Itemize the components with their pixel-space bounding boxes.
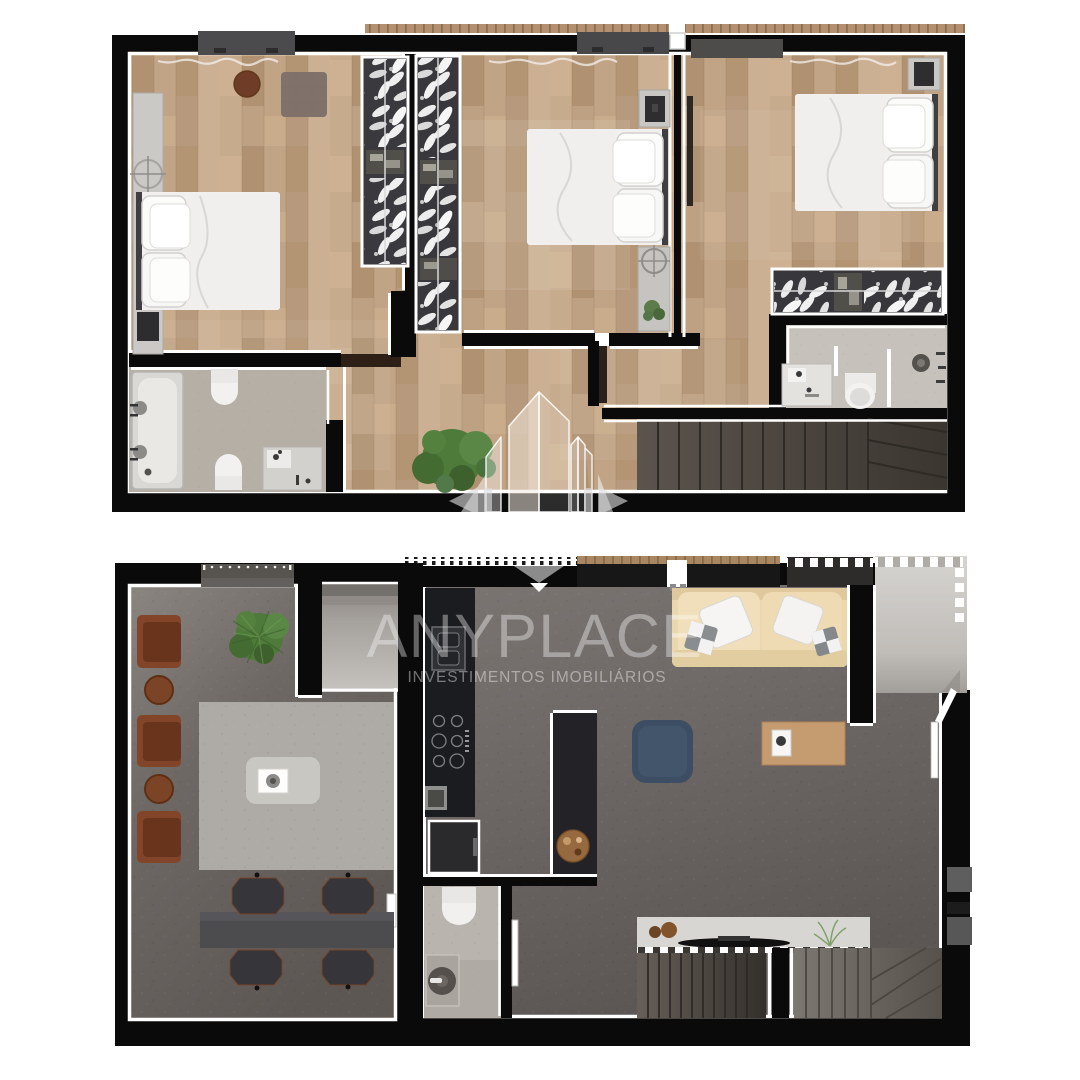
svg-text:INVESTIMENTOS IMOBILIÁRIOS: INVESTIMENTOS IMOBILIÁRIOS [407,669,666,686]
svg-text:ANYPLACE: ANYPLACE [367,602,704,670]
